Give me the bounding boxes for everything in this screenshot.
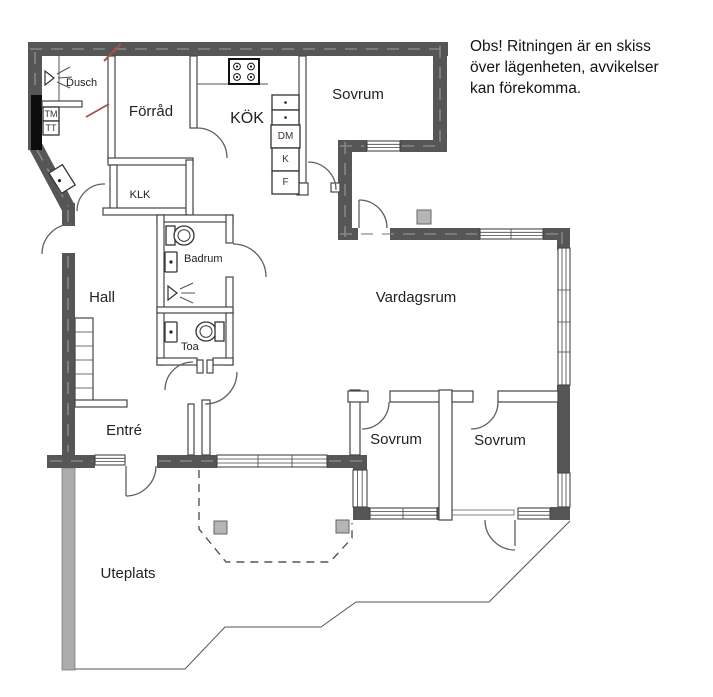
toilet-icon [196, 322, 224, 341]
window [558, 248, 570, 385]
room-label-uteplats: Uteplats [100, 566, 155, 583]
appliance-label-dm: DM [271, 125, 300, 148]
shower-head-icon [168, 283, 195, 303]
storage-door-arc [197, 128, 227, 158]
room-label-sovrum-right: Sovrum [474, 433, 526, 450]
room-label-dusch: Dusch [66, 77, 97, 89]
window [217, 455, 327, 467]
window [480, 229, 543, 239]
note-line-3: kan förekomma. [470, 78, 659, 99]
room-label-forrad: Förråd [129, 104, 173, 121]
sink-icon [165, 322, 177, 342]
floor-plan: Obs! Ritningen är en skiss över lägenhet… [0, 0, 713, 697]
posts [214, 210, 431, 534]
room-label-entre: Entré [106, 423, 142, 440]
corridor-door-arc [205, 372, 237, 404]
window [95, 455, 125, 465]
window [558, 473, 570, 507]
window [353, 470, 367, 507]
bedroom-right-door-arc [471, 402, 498, 429]
hall-laundry-door-arc [77, 184, 105, 211]
duct-shaft [31, 95, 42, 150]
appliance-label-k: K [272, 148, 299, 171]
note-line-2: över lägenheten, avvikelser [470, 57, 659, 78]
appliance-label-f: F [272, 171, 299, 194]
entrance-door [126, 466, 156, 496]
bedroom-left-door-arc [362, 402, 389, 429]
window [518, 508, 550, 519]
patio-post [214, 521, 227, 534]
room-label-hall: Hall [89, 290, 115, 307]
roof-overhang-dashed-outline [199, 470, 352, 562]
room-label-sovrum-top: Sovrum [332, 87, 384, 104]
corner-post [417, 210, 431, 224]
patio-door-threshold [450, 510, 514, 515]
window [370, 508, 437, 519]
stove-icon [229, 59, 259, 84]
toilet-door-arc [165, 362, 193, 390]
bathroom-fixtures [165, 226, 224, 342]
room-label-badrum: Badrum [184, 253, 223, 265]
room-label-sovrum-left: Sovrum [370, 432, 422, 449]
room-label-klk: KLK [130, 189, 151, 201]
bathroom-door-arc [233, 244, 266, 277]
patio-left-band [62, 468, 75, 670]
sink-icon [165, 252, 177, 272]
room-label-kok: KÖK [230, 110, 264, 128]
room-label-vardagsrum: Vardagsrum [376, 290, 457, 307]
bedroom-patio-door [485, 520, 515, 550]
appliance-label-tm: TM [43, 107, 59, 121]
hall-bench [75, 400, 127, 407]
floor-plan-drawing [0, 0, 713, 697]
note-line-1: Obs! Ritningen är en skiss [470, 36, 659, 57]
notch-exterior-door [359, 200, 387, 228]
front-door-arc [42, 224, 72, 254]
disclaimer-note: Obs! Ritningen är en skiss över lägenhet… [470, 36, 659, 99]
patio-post [336, 520, 349, 533]
window [367, 141, 400, 151]
appliance-label-tt: TT [43, 121, 59, 135]
room-label-toa: Toa [181, 341, 199, 353]
hall-closet [75, 318, 127, 407]
toilet-icon [166, 226, 194, 245]
